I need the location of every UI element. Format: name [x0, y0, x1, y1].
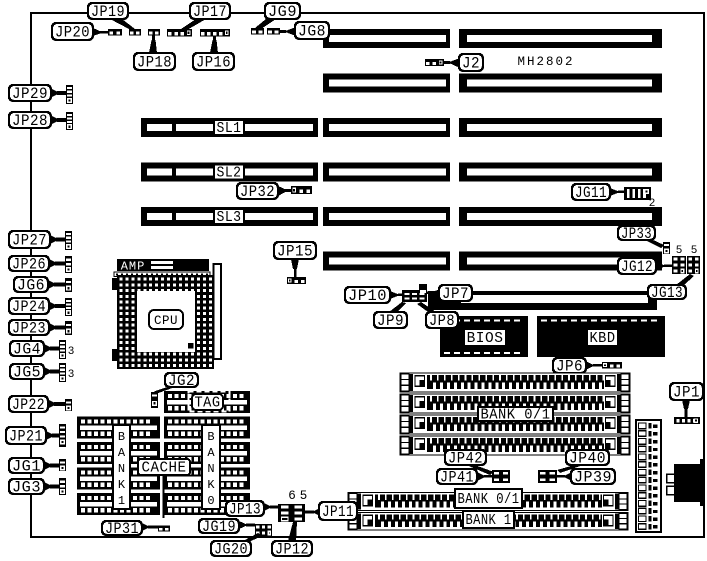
svg-text:JG2: JG2	[168, 372, 195, 390]
svg-text:JP42: JP42	[448, 450, 483, 468]
svg-text:JP41: JP41	[440, 469, 474, 487]
svg-text:KBD: KBD	[590, 331, 616, 347]
svg-text:SL1: SL1	[217, 121, 242, 137]
svg-text:JP27: JP27	[12, 232, 47, 250]
svg-text:5: 5	[300, 489, 308, 503]
svg-text:0: 0	[207, 494, 214, 508]
svg-text:JP15: JP15	[277, 243, 313, 261]
svg-text:BANK 1: BANK 1	[466, 513, 512, 529]
svg-text:CACHE: CACHE	[142, 461, 187, 477]
svg-text:3: 3	[68, 346, 75, 358]
svg-text:BIOS: BIOS	[467, 331, 504, 347]
svg-text:JP10: JP10	[348, 287, 387, 305]
svg-text:A: A	[118, 446, 126, 460]
svg-text:JP16: JP16	[196, 54, 231, 72]
svg-text:JP19: JP19	[91, 3, 125, 21]
svg-text:JP24: JP24	[12, 298, 46, 316]
svg-text:JG13: JG13	[651, 284, 683, 302]
svg-text:JP23: JP23	[12, 320, 46, 338]
svg-text:JP17: JP17	[193, 3, 227, 21]
svg-text:MH2802: MH2802	[517, 55, 574, 69]
svg-text:JP8: JP8	[429, 312, 455, 330]
svg-text:N: N	[118, 462, 125, 476]
svg-text:JG19: JG19	[202, 518, 236, 536]
svg-text:N: N	[207, 462, 214, 476]
svg-text:JP11: JP11	[322, 503, 354, 521]
svg-text:JP31: JP31	[105, 520, 139, 538]
svg-text:BANK 0/1: BANK 0/1	[481, 408, 551, 424]
svg-text:6: 6	[288, 489, 296, 503]
svg-text:JP40: JP40	[569, 450, 606, 468]
svg-text:B: B	[118, 430, 125, 444]
svg-text:A: A	[207, 446, 215, 460]
svg-text:JG3: JG3	[12, 479, 41, 497]
svg-text:JG20: JG20	[214, 541, 248, 559]
svg-text:JP32: JP32	[240, 183, 275, 201]
svg-text:JP39: JP39	[574, 469, 612, 487]
svg-text:JP18: JP18	[137, 54, 172, 72]
svg-text:JG5: JG5	[13, 364, 41, 382]
svg-text:JG9: JG9	[268, 3, 297, 21]
svg-text:JG4: JG4	[13, 341, 41, 359]
svg-text:JP13: JP13	[229, 501, 261, 519]
svg-text:JP22: JP22	[12, 396, 45, 414]
svg-text:5: 5	[691, 245, 698, 257]
svg-text:2: 2	[649, 198, 656, 210]
svg-text:TAG: TAG	[195, 396, 221, 412]
svg-text:JP21: JP21	[9, 428, 43, 446]
svg-text:BANK 0/1: BANK 0/1	[458, 492, 520, 508]
svg-text:JP26: JP26	[12, 256, 46, 274]
svg-text:JP28: JP28	[12, 112, 48, 130]
svg-text:JP20: JP20	[55, 24, 90, 42]
svg-text:JP9: JP9	[377, 312, 404, 330]
svg-text:JP12: JP12	[275, 541, 309, 559]
svg-text:JP33: JP33	[621, 225, 652, 243]
svg-text:JP7: JP7	[442, 285, 469, 303]
svg-text:K: K	[207, 478, 215, 492]
svg-text:3: 3	[68, 369, 75, 381]
svg-text:JP1: JP1	[673, 384, 700, 402]
svg-text:5: 5	[676, 245, 683, 257]
svg-text:JG8: JG8	[298, 23, 326, 41]
svg-text:B: B	[207, 430, 214, 444]
svg-text:JG11: JG11	[575, 184, 607, 202]
svg-text:SL2: SL2	[217, 166, 242, 182]
svg-text:K: K	[118, 478, 126, 492]
svg-text:SL3: SL3	[217, 210, 242, 226]
svg-text:JP29: JP29	[12, 85, 48, 103]
svg-text:JG1: JG1	[12, 458, 41, 476]
svg-text:JG12: JG12	[621, 258, 653, 276]
svg-text:CPU: CPU	[154, 314, 178, 328]
svg-text:AMP: AMP	[121, 260, 146, 274]
svg-text:JG6: JG6	[17, 277, 45, 295]
svg-text:J2: J2	[462, 55, 480, 73]
svg-text:1: 1	[118, 494, 125, 508]
